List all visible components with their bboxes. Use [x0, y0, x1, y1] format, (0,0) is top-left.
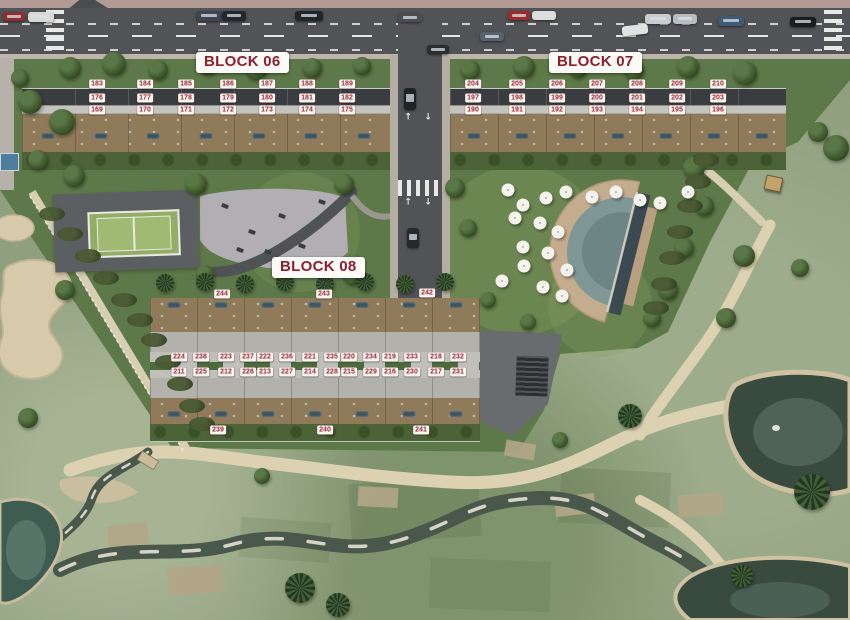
plot-number-tag: 170 [137, 106, 153, 115]
plot-number-tag: 205 [509, 80, 525, 89]
plot-number-tag: 195 [669, 106, 685, 115]
plot-number-tag: 185 [178, 80, 194, 89]
plot-number-tag: 208 [629, 80, 645, 89]
plot-number-tag: 177 [137, 94, 153, 103]
plot-number-tag: 206 [549, 80, 565, 89]
plot-number-tag: 190 [465, 106, 481, 115]
plot-number-tag: 229 [363, 368, 379, 377]
plot-number-tag: 194 [629, 106, 645, 115]
plot-number-tag: 217 [428, 368, 444, 377]
plot-number-tag: 230 [404, 368, 420, 377]
plot-number-tag: 241 [413, 426, 429, 435]
plot-number-tag: 234 [363, 353, 379, 362]
plot-number-tag: 174 [299, 106, 315, 115]
plot-number-tag: 181 [299, 94, 315, 103]
plot-number-tag: 192 [549, 106, 565, 115]
plot-number-tag: 204 [465, 80, 481, 89]
plot-number-tag: 199 [549, 94, 565, 103]
plot-number-tag: 223 [218, 353, 234, 362]
plot-number-tag: 186 [220, 80, 236, 89]
plot-number-tag: 236 [279, 353, 295, 362]
plot-number-tag: 227 [279, 368, 295, 377]
block-08-label: BLOCK 08 [272, 257, 365, 278]
plot-number-tag: 197 [465, 94, 481, 103]
plot-number-tag: 231 [450, 368, 466, 377]
plot-number-tag: 183 [89, 80, 105, 89]
plot-number-tag: 179 [220, 94, 236, 103]
plot-number-tag: 184 [137, 80, 153, 89]
plot-number-tag: 213 [257, 368, 273, 377]
block-06-label: BLOCK 06 [196, 52, 289, 73]
plot-number-tag: 216 [382, 368, 398, 377]
plot-number-tag: 215 [341, 368, 357, 377]
plot-number-tag: 189 [339, 80, 355, 89]
plot-number-tag: 200 [589, 94, 605, 103]
plot-number-tag: 210 [710, 80, 726, 89]
plot-number-tag: 172 [220, 106, 236, 115]
plot-number-tag: 228 [324, 368, 340, 377]
plot-number-tag: 232 [450, 353, 466, 362]
plot-number-tag: 242 [419, 289, 435, 298]
plot-number-tag: 240 [317, 426, 333, 435]
plot-number-tag: 224 [171, 353, 187, 362]
labels-layer: 1831841851861871881891761771781791801811… [0, 0, 850, 620]
plot-number-tag: 238 [193, 353, 209, 362]
plot-number-tag: 211 [171, 368, 186, 377]
plot-number-tag: 235 [324, 353, 340, 362]
plot-number-tag: 176 [89, 94, 105, 103]
plot-number-tag: 222 [257, 353, 273, 362]
plot-number-tag: 244 [214, 290, 230, 299]
plot-number-tag: 219 [382, 353, 398, 362]
plot-number-tag: 188 [299, 80, 315, 89]
plot-number-tag: 182 [339, 94, 355, 103]
plot-number-tag: 226 [240, 368, 256, 377]
plot-number-tag: 180 [259, 94, 275, 103]
plot-number-tag: 221 [302, 353, 318, 362]
plot-number-tag: 173 [259, 106, 275, 115]
plot-number-tag: 207 [589, 80, 605, 89]
plot-number-tag: 225 [193, 368, 209, 377]
block-07-label: BLOCK 07 [549, 52, 642, 73]
plot-number-tag: 193 [589, 106, 605, 115]
plot-number-tag: 203 [710, 94, 726, 103]
plot-number-tag: 201 [629, 94, 645, 103]
plot-number-tag: 239 [210, 426, 226, 435]
plot-number-tag: 212 [218, 368, 234, 377]
plot-number-tag: 237 [240, 353, 256, 362]
plot-number-tag: 178 [178, 94, 194, 103]
plot-number-tag: 187 [259, 80, 275, 89]
plot-number-tag: 202 [669, 94, 685, 103]
plot-number-tag: 233 [404, 353, 420, 362]
plot-number-tag: 220 [341, 353, 357, 362]
plot-number-tag: 175 [339, 106, 355, 115]
plot-number-tag: 209 [669, 80, 685, 89]
plot-number-tag: 171 [178, 106, 194, 115]
plot-number-tag: 196 [710, 106, 726, 115]
plot-number-tag: 218 [428, 353, 444, 362]
masterplan-map: ↑↓↑↓ 18318418518618718818917617717817918… [0, 0, 850, 620]
plot-number-tag: 243 [316, 290, 332, 299]
plot-number-tag: 214 [302, 368, 318, 377]
plot-number-tag: 169 [89, 106, 105, 115]
plot-number-tag: 191 [509, 106, 525, 115]
plot-number-tag: 198 [509, 94, 525, 103]
